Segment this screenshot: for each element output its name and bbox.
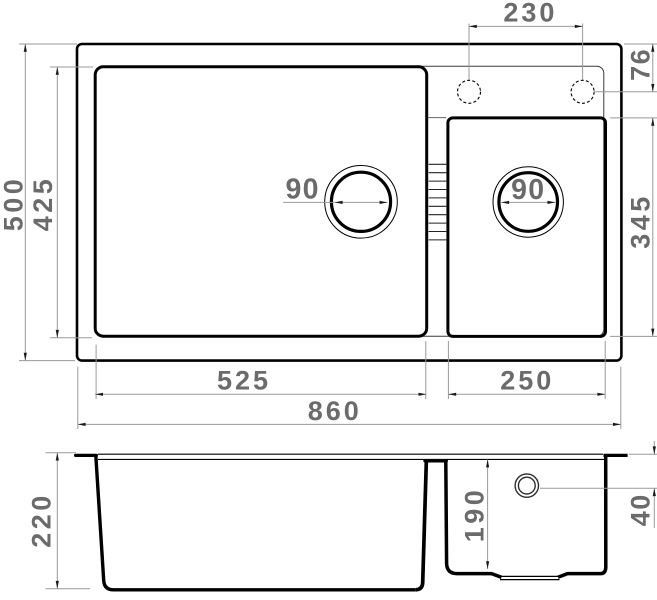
svg-text:190: 190 bbox=[459, 487, 489, 543]
svg-text:425: 425 bbox=[28, 176, 58, 232]
svg-text:230: 230 bbox=[503, 0, 557, 28]
svg-text:500: 500 bbox=[0, 176, 29, 232]
svg-text:860: 860 bbox=[308, 396, 362, 426]
svg-text:345: 345 bbox=[626, 193, 656, 249]
svg-text:40: 40 bbox=[626, 493, 656, 526]
svg-text:220: 220 bbox=[27, 492, 57, 548]
svg-text:525: 525 bbox=[217, 366, 271, 396]
svg-text:90: 90 bbox=[286, 173, 320, 205]
svg-text:76: 76 bbox=[626, 48, 656, 81]
svg-text:250: 250 bbox=[500, 366, 554, 396]
svg-text:90: 90 bbox=[511, 174, 545, 206]
